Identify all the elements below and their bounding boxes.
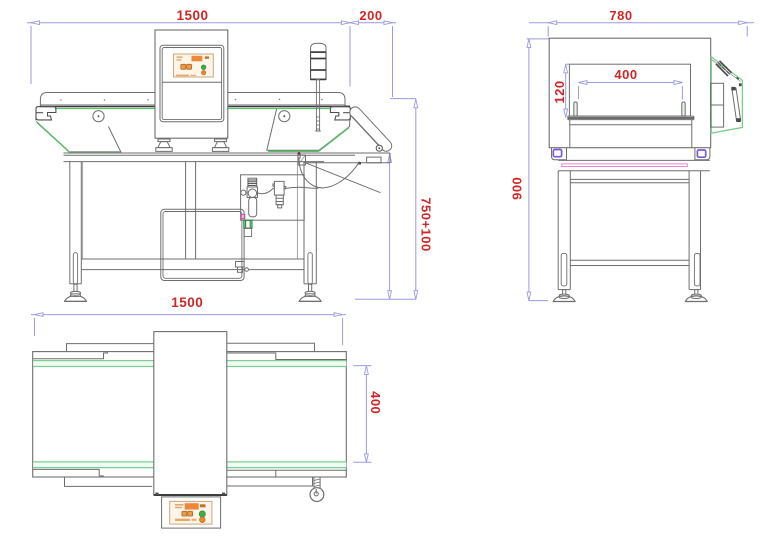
svg-text:400: 400 — [614, 67, 637, 82]
svg-text:400: 400 — [368, 391, 383, 414]
svg-text:900: 900 — [509, 177, 524, 200]
svg-text:780: 780 — [609, 8, 632, 23]
svg-text:1500: 1500 — [171, 295, 203, 310]
svg-text:750+100: 750+100 — [419, 197, 434, 251]
svg-text:120: 120 — [552, 80, 567, 103]
svg-text:200: 200 — [359, 8, 382, 23]
svg-text:1500: 1500 — [176, 8, 208, 23]
